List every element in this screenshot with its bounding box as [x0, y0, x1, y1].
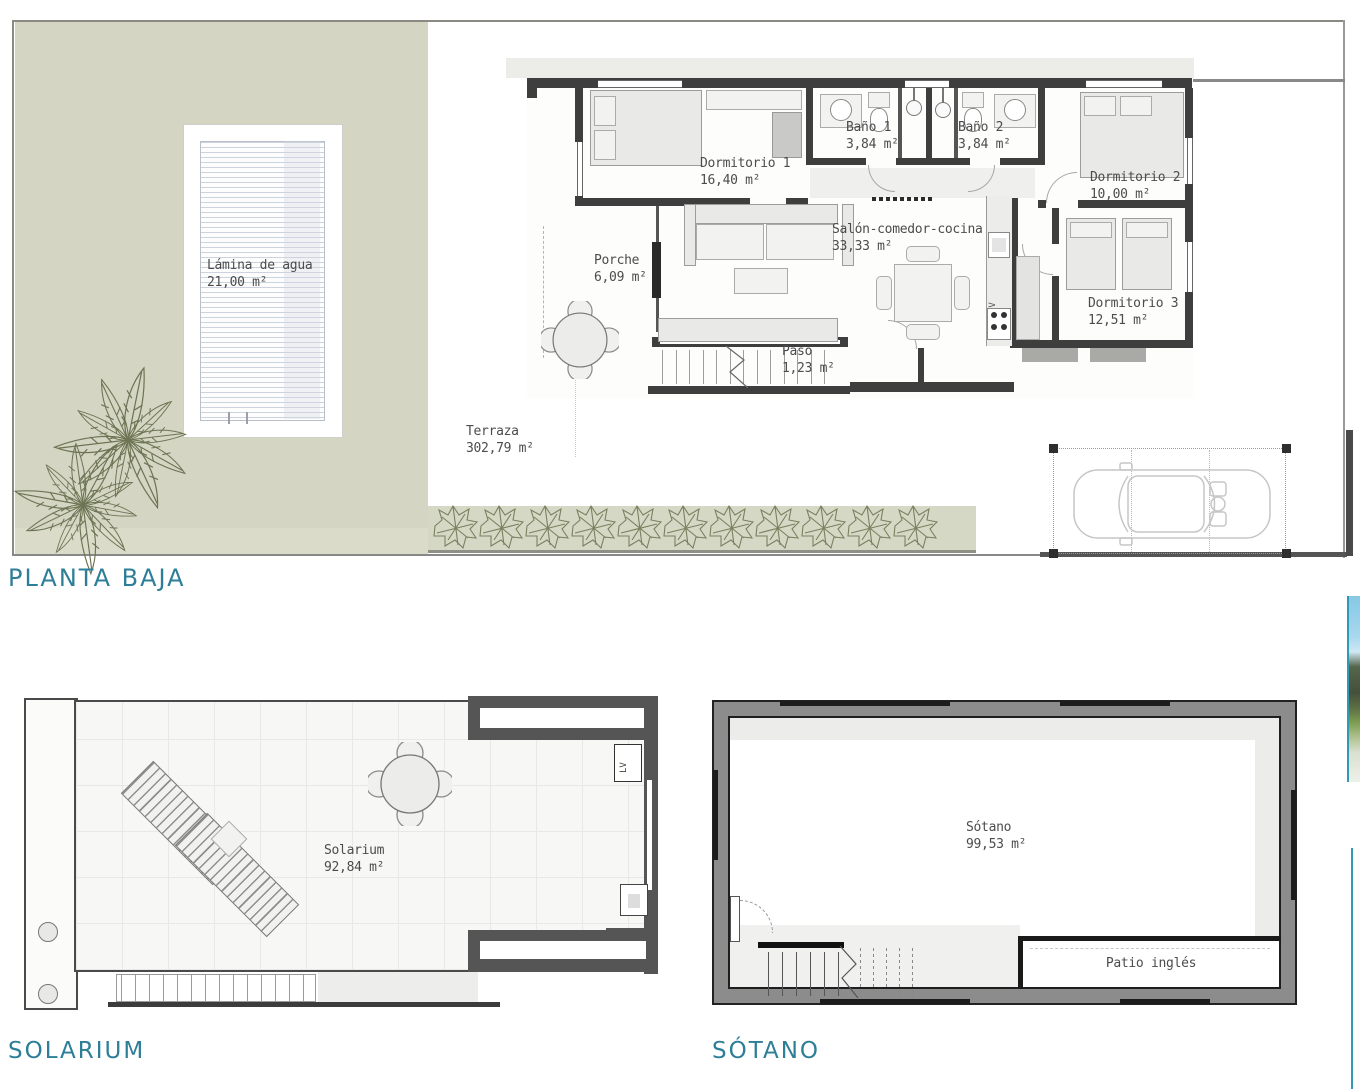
- bush-icon: [572, 506, 615, 548]
- sofa-back: [688, 204, 838, 224]
- dining-table: [894, 264, 952, 322]
- fence-line: [1192, 79, 1345, 82]
- stair-break-line: [838, 946, 862, 998]
- stair-tread: [676, 350, 677, 384]
- solarium-side-strip: [24, 698, 78, 1010]
- bush-icon: [618, 506, 661, 548]
- window-dorm3-east: [1187, 242, 1193, 292]
- roof-shadow: [506, 58, 1194, 78]
- wall-dorm3-left-a: [1052, 208, 1059, 244]
- window-dorm1: [598, 80, 682, 88]
- bush-icon: [526, 506, 569, 548]
- stairs-sotano: [764, 952, 848, 996]
- burner: [991, 324, 997, 330]
- sink-icon: [830, 99, 852, 121]
- stair-tread: [177, 975, 178, 1001]
- stair-tread: [782, 952, 783, 996]
- wall-endcap: [527, 78, 537, 98]
- wall-paso-south: [850, 382, 1014, 392]
- pool-ladder-icon: [228, 412, 248, 424]
- stair-tread: [219, 975, 220, 1001]
- floor-plans-sheet: Lámina de agua21,00 m²: [0, 0, 1360, 1089]
- shower-head-icon: [935, 102, 951, 118]
- stair-tread: [796, 952, 797, 996]
- window-dorm2-east: [1187, 138, 1193, 184]
- solarium-east-window: [647, 780, 652, 890]
- bush-icon: [480, 506, 523, 548]
- carport-post: [1049, 549, 1058, 558]
- wall-banos-south-b: [896, 158, 970, 165]
- threshold-dot: [907, 197, 911, 201]
- door-leaf: [730, 896, 740, 942]
- bush-row: [430, 502, 978, 556]
- wardrobe: [772, 112, 802, 158]
- stair-tread: [770, 350, 771, 384]
- bush-icon: [756, 506, 799, 548]
- wall-paso-divider: [918, 348, 924, 388]
- sink-icon: [1004, 99, 1026, 121]
- kitchen-sink-basin: [992, 238, 1006, 252]
- deck-shadow: [318, 972, 478, 1004]
- wall-east-a: [1185, 88, 1193, 138]
- wall-east-b: [1185, 184, 1193, 242]
- stair-tread: [289, 975, 290, 1001]
- sofa-cushion: [766, 224, 834, 260]
- wardrobe: [1016, 256, 1040, 340]
- bush-icon: [434, 506, 477, 548]
- wall-dorm1-bano1: [806, 88, 813, 165]
- palm-fronds: [13, 440, 138, 574]
- stair-tread: [662, 350, 663, 384]
- pillow: [1070, 222, 1112, 238]
- stairs-solarium: [116, 974, 316, 1002]
- floor-title-sotano: SÓTANO: [712, 1038, 820, 1064]
- stairs-sotano-dashed: [856, 948, 918, 998]
- stair-tread: [303, 975, 304, 1001]
- wall-dorm3-left-b: [1052, 276, 1059, 348]
- threshold-dot: [872, 197, 876, 201]
- photo-sliver: [1347, 596, 1360, 782]
- site-boundary-right: [1343, 20, 1345, 558]
- stair-tread: [703, 350, 704, 384]
- stair-tread: [233, 975, 234, 1001]
- room-label-terraza: Terraza302,79 m²: [466, 424, 534, 457]
- stair-tread: [149, 975, 150, 1001]
- wall-bano2-dorm2: [1038, 88, 1045, 165]
- window-dorm1-left: [577, 142, 583, 198]
- pillow: [594, 130, 616, 160]
- pillow: [1120, 96, 1152, 116]
- pillow: [1126, 222, 1168, 238]
- solarium-sink-basin: [628, 894, 640, 908]
- tv-sideboard: [658, 318, 838, 342]
- room-label-paso: Paso1,23 m²: [782, 344, 835, 377]
- room-label-patio-ingles: Patio inglés: [1106, 956, 1196, 973]
- toilet-tank: [962, 92, 984, 108]
- car-icon: [1072, 462, 1272, 546]
- wall-dorm1-left: [575, 88, 583, 142]
- window-banos: [905, 80, 949, 88]
- column: [652, 242, 661, 298]
- terrace-step: [1022, 348, 1078, 362]
- pergola-north-slot: [480, 708, 646, 728]
- stair-tread: [135, 975, 136, 1001]
- carport-post: [1282, 444, 1291, 453]
- wall-accent: [713, 770, 718, 860]
- bush-icon: [710, 506, 753, 548]
- room-label-porche: Porche6,09 m²: [594, 253, 647, 286]
- sotano-floor-band-top: [730, 718, 1279, 740]
- floor-title-solarium: SOLARIUM: [8, 1038, 145, 1064]
- toilet-tank: [868, 92, 890, 108]
- threshold-dot: [886, 197, 890, 201]
- wall-accent: [820, 999, 970, 1004]
- threshold-dot: [900, 197, 904, 201]
- stair-tread: [824, 952, 825, 996]
- round-table-chairs: [368, 742, 452, 826]
- room-label-sotano: Sótano99,53 m²: [966, 820, 1026, 853]
- window-dorm2: [1086, 80, 1162, 88]
- wall-accent: [1060, 701, 1170, 706]
- stair-tread: [205, 975, 206, 1001]
- wall-banos-south-c: [1000, 158, 1038, 165]
- bush-icon: [894, 506, 937, 548]
- bush-icon: [848, 506, 891, 548]
- stair-tread: [191, 975, 192, 1001]
- stair-tread: [275, 975, 276, 1001]
- wall-banos-south-a: [806, 158, 866, 165]
- burner: [1001, 312, 1007, 318]
- patio-dashed-line: [1030, 948, 1270, 950]
- stair-tread: [716, 350, 717, 384]
- wall-dorm2-south-stub: [1038, 200, 1046, 208]
- site-wall-right: [1346, 430, 1353, 556]
- floor-title-planta-baja: PLANTA BAJA: [8, 564, 186, 592]
- stair-break-line: [724, 346, 752, 388]
- wall-dorm3-south: [1010, 340, 1192, 348]
- sotano-floor-band-right: [1255, 740, 1279, 936]
- stair-tread: [886, 948, 887, 998]
- room-label-bano-2: Baño 23,84 m²: [958, 120, 1011, 153]
- threshold-dot: [914, 197, 918, 201]
- coffee-table: [734, 268, 788, 294]
- planter-pot-icon: [38, 984, 58, 1004]
- sofa-cushion: [696, 224, 764, 260]
- stair-tread: [899, 948, 900, 998]
- threshold-dot: [921, 197, 925, 201]
- room-label-salon: Salón-comedor-cocina33,33 m²: [832, 222, 983, 255]
- wall-accent: [1120, 999, 1210, 1004]
- stair-tread: [873, 948, 874, 998]
- chair: [906, 324, 940, 340]
- threshold-dot: [928, 197, 932, 201]
- room-label-bano-1: Baño 13,84 m²: [846, 120, 899, 153]
- pillow: [1084, 96, 1116, 116]
- burner: [991, 312, 997, 318]
- round-table-chairs: [541, 301, 619, 379]
- threshold-dots: [872, 197, 936, 201]
- sofa-arm: [684, 204, 696, 266]
- wall-accent: [780, 701, 950, 706]
- stair-tread: [261, 975, 262, 1001]
- room-label-dormitorio-2: Dormitorio 210,00 m²: [1090, 170, 1180, 203]
- pillow: [594, 96, 616, 126]
- stair-tread: [247, 975, 248, 1001]
- pergola-south-slot: [480, 941, 646, 959]
- threshold-dot: [879, 197, 883, 201]
- carport-post: [1282, 549, 1291, 558]
- chair: [876, 276, 892, 310]
- carport-post: [1049, 444, 1058, 453]
- room-label-solarium: Solarium92,84 m²: [324, 843, 384, 876]
- stair-tread: [757, 350, 758, 384]
- closet: [706, 90, 802, 110]
- palm-tree-icon: [8, 430, 158, 580]
- bush-icon: [802, 506, 845, 548]
- shower-head-icon: [906, 100, 922, 116]
- stair-tread: [810, 952, 811, 996]
- chair: [954, 276, 970, 310]
- stair-tread: [689, 350, 690, 384]
- room-label-dormitorio-1: Dormitorio 116,40 m²: [700, 156, 790, 189]
- laundry-label: LV: [619, 749, 637, 773]
- room-label-lamina-de-agua: Lámina de agua21,00 m²: [207, 258, 312, 291]
- solarium-bottom-edge: [108, 1002, 500, 1007]
- terrace-step: [1090, 348, 1146, 362]
- stair-landing: [758, 942, 844, 948]
- stair-tread: [768, 952, 769, 996]
- burner: [1001, 324, 1007, 330]
- card-edge-sliver: [1351, 848, 1360, 1089]
- wall-accent: [1291, 790, 1296, 900]
- threshold-dot: [893, 197, 897, 201]
- stair-tread: [121, 975, 122, 1001]
- room-label-dormitorio-3: Dormitorio 312,51 m²: [1088, 296, 1178, 329]
- stair-tread: [912, 948, 913, 998]
- wall-bano1-bano2: [926, 88, 932, 158]
- planter-pot-icon: [38, 922, 58, 942]
- hall-floor: [810, 168, 1035, 198]
- stair-tread: [163, 975, 164, 1001]
- bush-icon: [664, 506, 707, 548]
